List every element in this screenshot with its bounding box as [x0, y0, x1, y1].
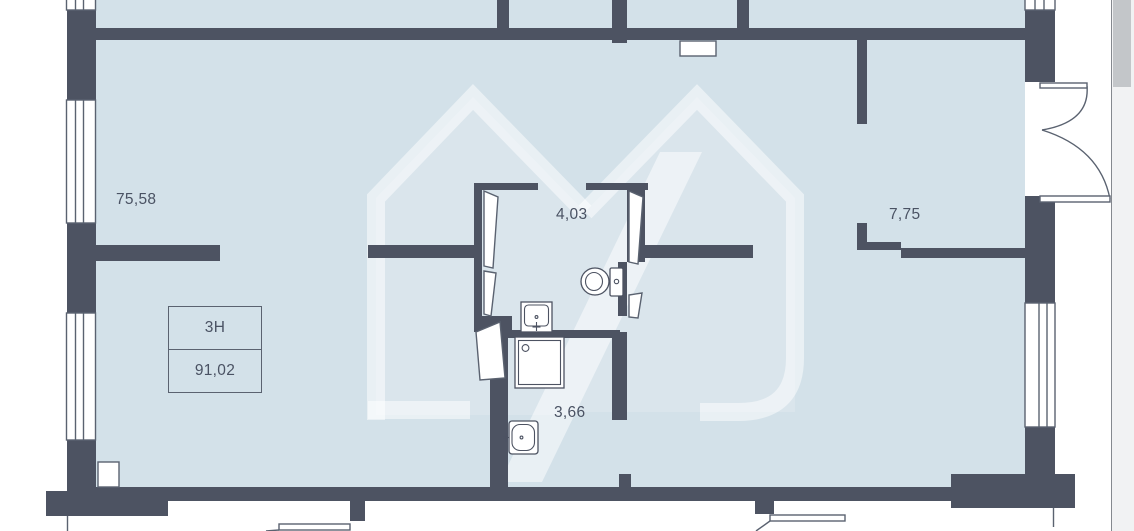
window-right-bottom	[1025, 303, 1055, 427]
toilet-icon	[581, 268, 623, 296]
lower-storey-door-right-icon	[756, 515, 845, 531]
lower-storey-door-left-icon	[266, 524, 350, 531]
shower-tray-icon	[515, 337, 564, 388]
sink-upper-icon	[521, 302, 552, 332]
floorplan-viewport: 75,58 4,03 7,75 3,66 3Н 91,02	[0, 0, 1134, 531]
room-area-label-right-room: 7,75	[889, 206, 920, 224]
vertical-scrollbar-thumb[interactable]	[1113, 0, 1131, 87]
room-area-label-main: 75,58	[116, 191, 156, 209]
room-area-label-shower-room: 3,66	[554, 404, 585, 422]
window-left-bottom	[67, 313, 96, 440]
column-notch-icon	[98, 462, 119, 487]
floorplan-canvas: 75,58 4,03 7,75 3,66 3Н 91,02	[0, 0, 1112, 531]
vent-shaft-icon	[680, 41, 716, 56]
unit-total-area-label: 91,02	[169, 350, 261, 392]
unit-info-box: 3Н 91,02	[168, 306, 262, 393]
vertical-scrollbar[interactable]	[1111, 0, 1134, 531]
unit-type-label: 3Н	[169, 307, 261, 350]
floorplan-svg	[0, 0, 1112, 531]
window-right-top	[1025, 0, 1055, 10]
window-left-middle	[67, 100, 96, 223]
room-area-label-bathroom: 4,03	[556, 206, 587, 224]
window-left-top	[67, 0, 96, 10]
entrance-double-door-swing-icon	[1040, 83, 1110, 202]
